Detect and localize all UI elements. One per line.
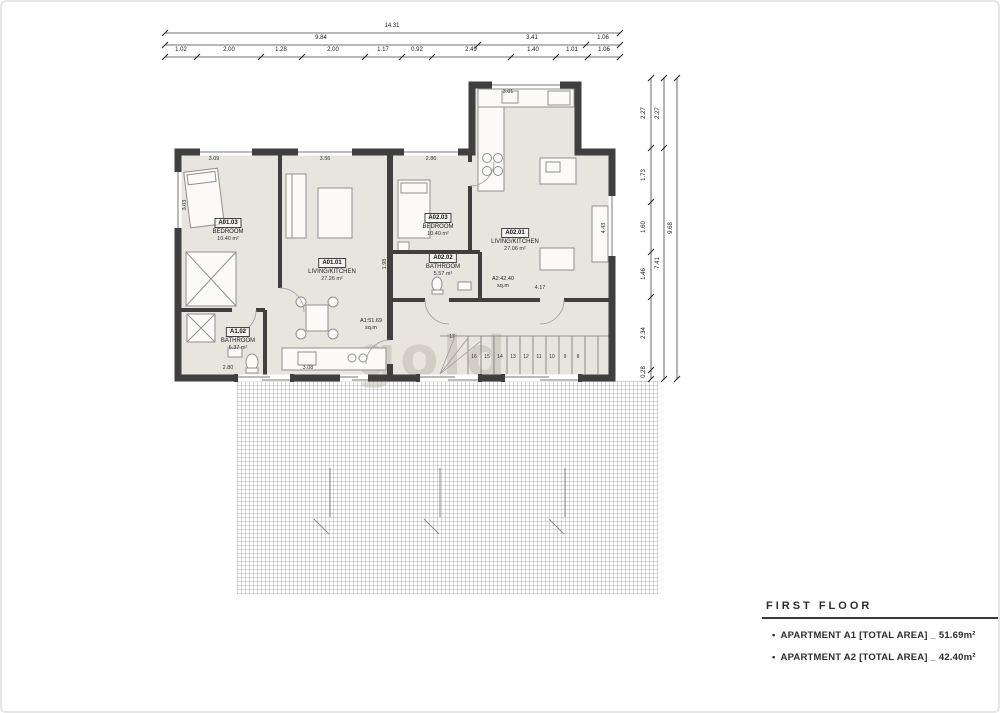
dim-label: 1.06 xyxy=(597,35,609,41)
room-area: 5.57 m² xyxy=(434,271,453,277)
shower-symbol xyxy=(187,314,215,342)
stair-number: 11 xyxy=(536,354,541,360)
dim-label: 0.92 xyxy=(411,47,423,53)
bullet-icon: • xyxy=(772,652,776,663)
stair-number: 9 xyxy=(564,354,567,360)
dim-interior: 2.86 xyxy=(426,156,437,162)
dim-label: 2.34 xyxy=(641,327,647,339)
legend: FIRST FLOOR •APARTMENT A1 [TOTAL AREA] _… xyxy=(762,600,998,663)
toilet-symbol-a2 xyxy=(432,277,443,294)
slope-arrows xyxy=(314,468,565,534)
room-label-a02-01: A02.01 LIVING/KITCHEN 27.06 m² xyxy=(491,228,539,252)
dim-label: 1.60 xyxy=(641,221,647,233)
room-name: BATHROOM xyxy=(221,338,255,344)
room-name: LIVING/KITCHEN xyxy=(308,269,356,275)
dim-label: 2.27 xyxy=(655,107,661,119)
sofa-symbol xyxy=(286,174,306,238)
legend-title: FIRST FLOOR xyxy=(762,600,998,612)
dim-label: 2.27 xyxy=(641,107,647,119)
dim-label: 1.40 xyxy=(527,47,539,53)
kitchen-counter-a2 xyxy=(540,158,576,184)
kitchen-counter-symbol xyxy=(282,348,386,370)
dim-interior: 1.98 xyxy=(382,259,388,270)
dim-label: 2.49 xyxy=(465,47,477,53)
dim-interior: 3.08 xyxy=(303,365,314,371)
legend-item-a1: •APARTMENT A1 [TOTAL AREA] _ 51.69m² xyxy=(762,630,998,641)
dim-label: 2.00 xyxy=(223,47,235,53)
room-name: BATHROOM xyxy=(426,264,460,270)
dim-interior: 3.01 xyxy=(503,89,514,95)
dim-label: 1.73 xyxy=(641,169,647,181)
dim-interior: 3.09 xyxy=(209,156,220,162)
room-id: A1.02 xyxy=(226,327,250,337)
coffee-table-a2 xyxy=(540,248,574,270)
stair-number: 14 xyxy=(497,354,503,360)
stair-number: 15 xyxy=(484,354,490,360)
stair-number: 17 xyxy=(449,334,455,340)
room-label-a01-01: A01.01 LIVING/KITCHEN 27.26 m² xyxy=(308,258,356,282)
room-name: BEDROOM xyxy=(212,229,243,235)
area-tag-line1: A2:42.40 xyxy=(492,276,514,283)
dim-label: 0.28 xyxy=(641,366,647,378)
stair-number: 13 xyxy=(510,354,516,360)
table-symbol xyxy=(318,188,352,238)
dim-interior: 4.17 xyxy=(535,285,546,291)
stair-number: 10 xyxy=(549,354,555,360)
area-tag-line1: A1:51.69 xyxy=(360,318,382,325)
dim-label: 1.02 xyxy=(175,47,187,53)
room-name: LIVING/KITCHEN xyxy=(491,239,539,245)
room-area: 6.37 m² xyxy=(229,345,248,351)
area-tag-a2: A2:42.40 sq.m xyxy=(492,276,514,289)
room-area: 27.26 m² xyxy=(321,276,343,282)
area-tag-line2: sq.m xyxy=(492,283,514,290)
stair-number: 16 xyxy=(471,354,477,360)
room-id: A02.03 xyxy=(424,213,451,223)
dim-total-top: 14.31 xyxy=(384,23,399,29)
dim-label: 1.01 xyxy=(566,47,578,53)
dim-label: 3.41 xyxy=(526,35,538,41)
room-label-a1-02: A1.02 BATHROOM 6.37 m² xyxy=(221,327,255,351)
dim-label: 1.06 xyxy=(598,47,610,53)
legend-item-a2: •APARTMENT A2 [TOTAL AREA] _ 42.40m² xyxy=(762,652,998,663)
area-tag-line2: sq.m xyxy=(360,325,382,332)
dim-label: 1.17 xyxy=(377,47,389,53)
sofa-symbol-a2 xyxy=(592,206,608,262)
room-label-a01-03: A01.03 BEDROOM 10.40 m² xyxy=(212,218,243,242)
room-area: 10.40 m² xyxy=(427,231,449,237)
stair-number: 8 xyxy=(577,354,580,360)
dim-label: 1.46 xyxy=(641,268,647,280)
legend-item-text: APARTMENT A1 [TOTAL AREA] _ 51.69m² xyxy=(781,630,976,641)
dim-total-right: 9.68 xyxy=(668,222,674,234)
toilet-symbol-a1 xyxy=(246,354,258,373)
dim-interior: 2.80 xyxy=(223,365,234,371)
dim-label: 1.28 xyxy=(275,47,287,53)
wardrobe-symbol xyxy=(186,252,236,306)
dim-interior: 4.43 xyxy=(601,223,607,234)
sink-symbol-a2 xyxy=(458,282,471,290)
room-label-a02-02: A02.02 BATHROOM 5.57 m² xyxy=(426,253,460,277)
room-id: A01.01 xyxy=(318,258,345,268)
room-id: A02.01 xyxy=(501,228,528,238)
room-area: 27.06 m² xyxy=(504,246,526,252)
room-id: A01.03 xyxy=(214,218,241,228)
dim-label: 7.41 xyxy=(655,257,661,269)
room-name: BEDROOM xyxy=(422,224,453,230)
room-area: 10.40 m² xyxy=(217,236,239,242)
legend-item-text: APARTMENT A2 [TOTAL AREA] _ 42.40m² xyxy=(781,652,976,663)
room-label-a02-03: A02.03 BEDROOM 10.40 m² xyxy=(422,213,453,237)
legend-divider xyxy=(762,617,998,619)
dim-interior: 3.56 xyxy=(320,156,331,162)
dim-label: 9.84 xyxy=(315,35,327,41)
room-id: A02.02 xyxy=(429,253,456,263)
dim-label: 2.00 xyxy=(327,47,339,53)
dim-interior: 3.03 xyxy=(182,200,188,211)
stair-number: 12 xyxy=(523,354,529,360)
bullet-icon: • xyxy=(772,630,776,641)
area-tag-a1: A1:51.69 sq.m xyxy=(360,318,382,331)
floor-plan-page: gold xyxy=(0,0,1000,713)
